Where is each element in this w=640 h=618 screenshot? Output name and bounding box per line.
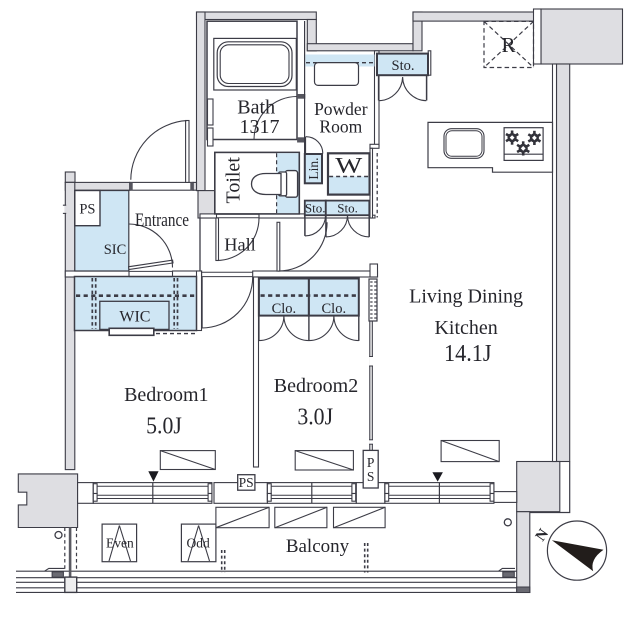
svg-text:Bedroom1: Bedroom1 (124, 384, 208, 406)
svg-text:Living Dining: Living Dining (409, 286, 523, 308)
svg-text:R: R (501, 33, 515, 57)
svg-text:Hall: Hall (224, 235, 255, 255)
svg-text:Sto.: Sto. (392, 58, 415, 74)
svg-text:Odd: Odd (186, 536, 209, 551)
svg-text:Sto.: Sto. (337, 200, 358, 215)
svg-text:Bedroom2: Bedroom2 (274, 375, 358, 397)
svg-text:Room: Room (319, 117, 362, 137)
svg-text:Lin.: Lin. (306, 158, 321, 180)
svg-text:Sto.: Sto. (305, 200, 326, 215)
svg-text:Balcony: Balcony (286, 536, 350, 557)
svg-text:Clo.: Clo. (322, 301, 347, 317)
svg-text:Entrance: Entrance (135, 210, 189, 231)
svg-text:Even: Even (106, 536, 134, 551)
svg-text:1317: 1317 (240, 116, 280, 138)
svg-text:SIC: SIC (104, 242, 127, 258)
svg-text:W: W (335, 152, 362, 177)
svg-text:Clo.: Clo. (272, 301, 297, 317)
svg-text:PS: PS (239, 475, 254, 490)
svg-text:Kitchen: Kitchen (434, 317, 497, 339)
svg-text:S: S (367, 469, 375, 484)
svg-text:14.1J: 14.1J (444, 341, 492, 367)
svg-text:WIC: WIC (119, 309, 150, 326)
svg-text:3.0J: 3.0J (297, 405, 333, 431)
svg-text:P: P (367, 455, 375, 470)
svg-text:Toilet: Toilet (222, 157, 244, 204)
svg-text:PS: PS (79, 202, 95, 218)
svg-text:5.0J: 5.0J (146, 414, 182, 440)
